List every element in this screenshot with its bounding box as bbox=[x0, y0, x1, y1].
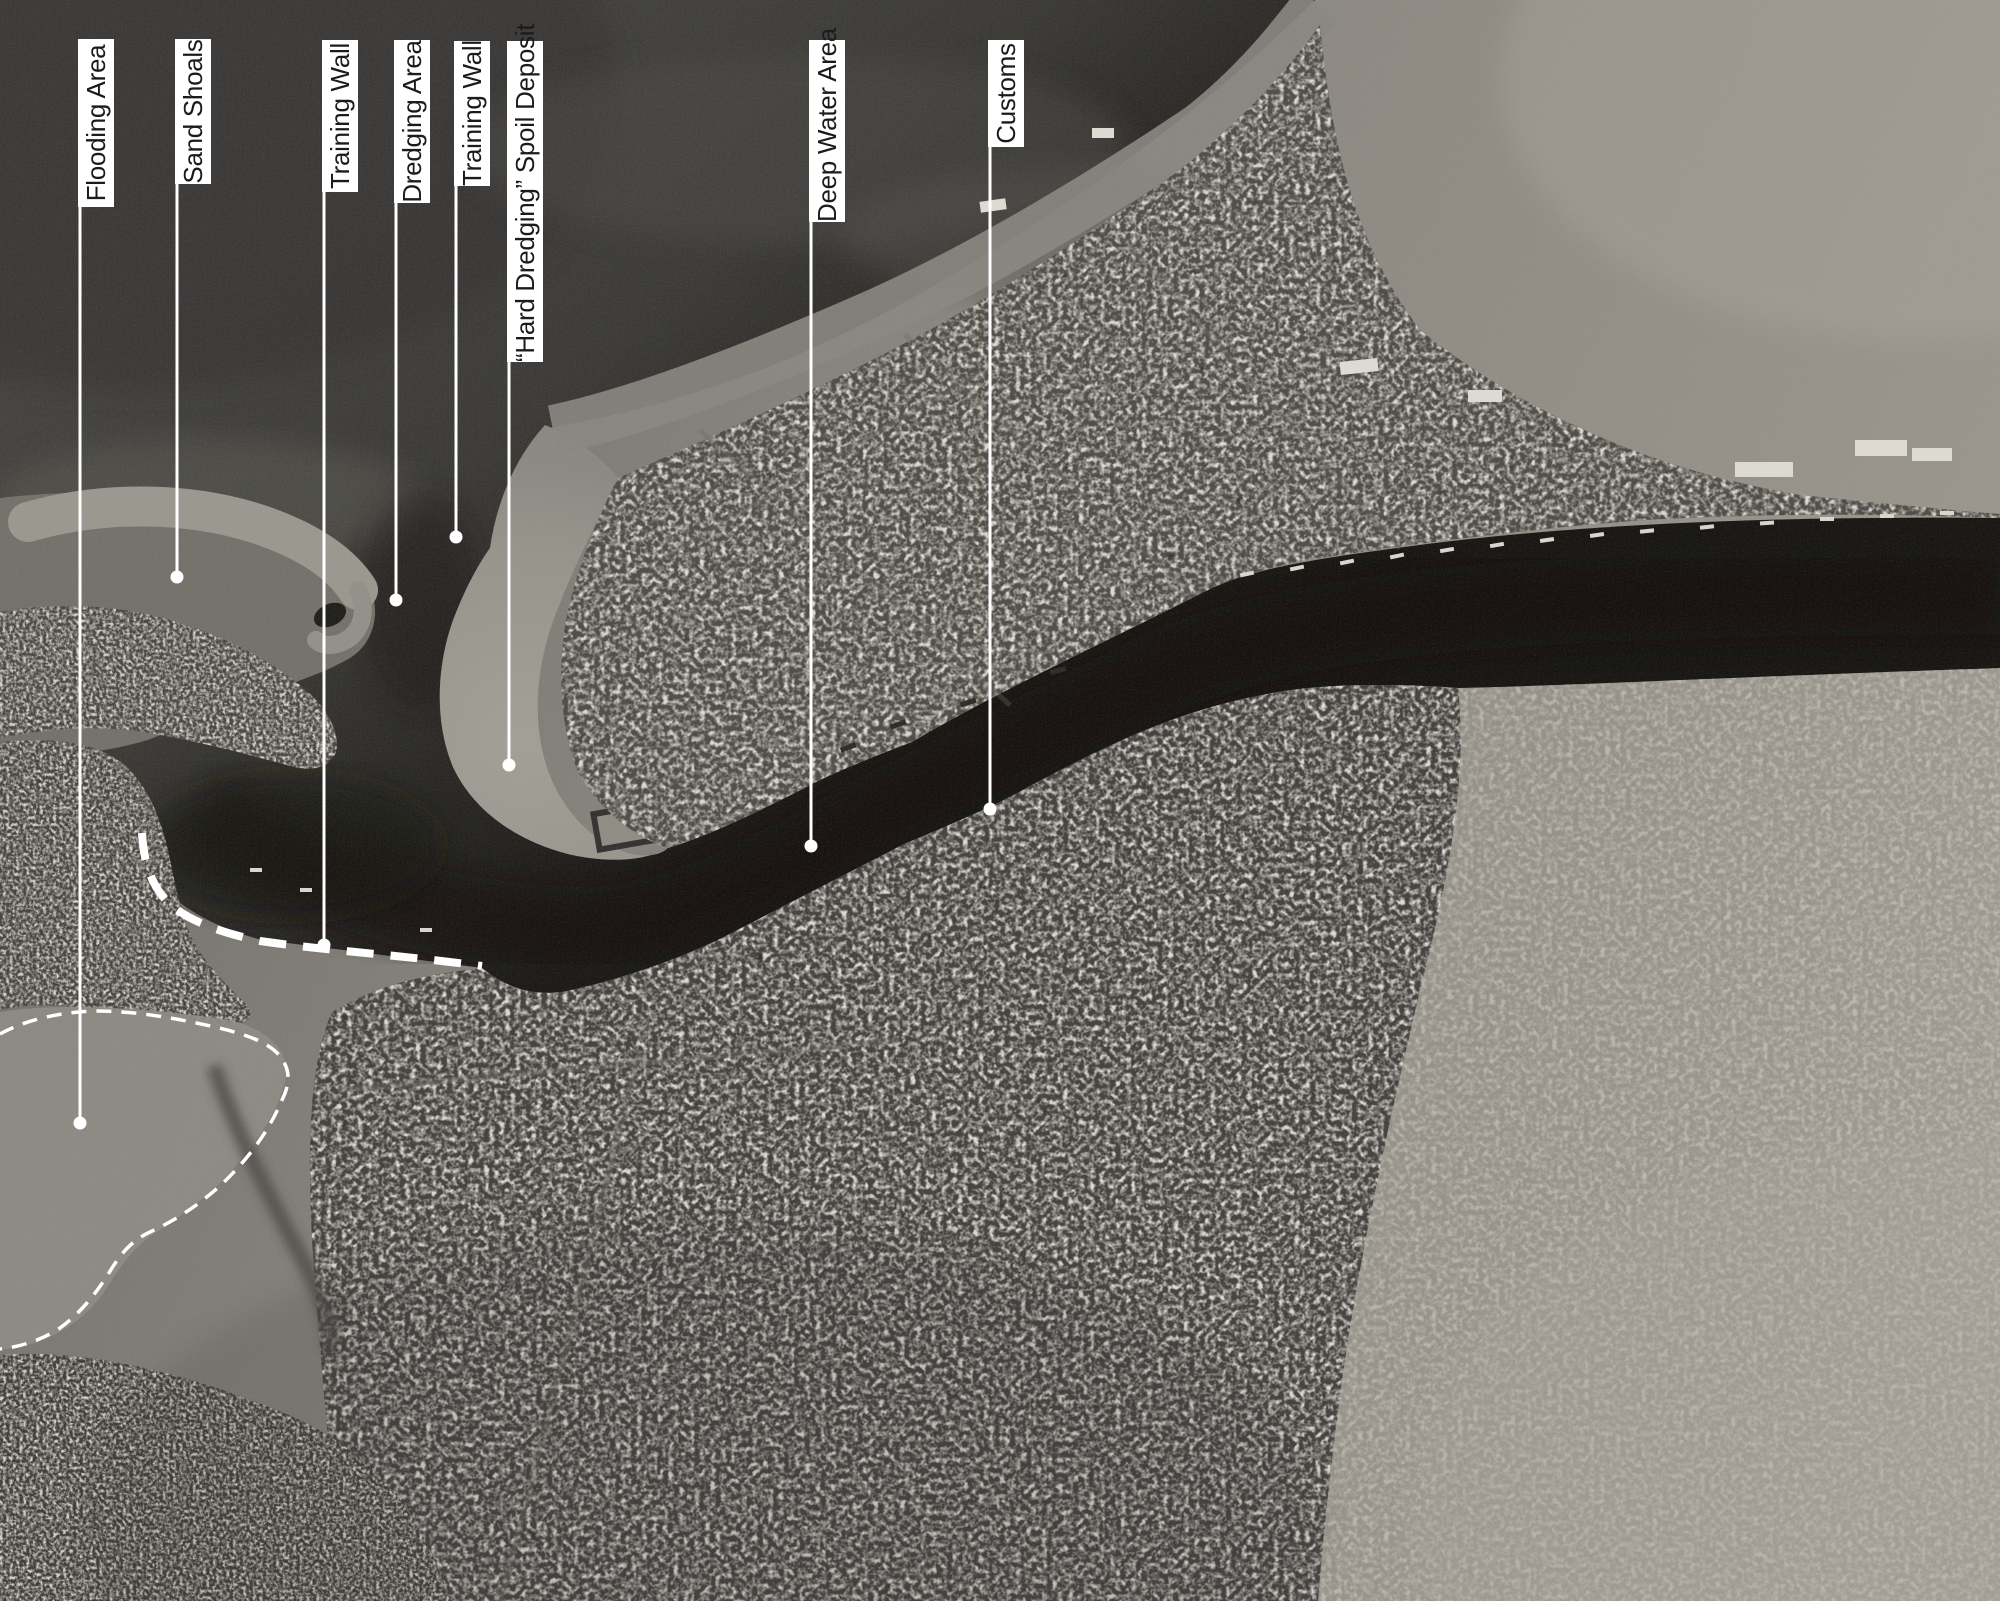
leader-dot-dredging-area bbox=[390, 594, 403, 607]
leader-dot-spoil-deposit bbox=[503, 759, 516, 772]
annotation-label-training-wall-2: Training Wall bbox=[454, 41, 490, 186]
leader-dot-deep-water-area bbox=[805, 840, 818, 853]
leader-dot-sand-shoals bbox=[171, 571, 184, 584]
aerial-photo-svg bbox=[0, 0, 2000, 1601]
leader-dot-customs bbox=[984, 803, 997, 816]
annotation-label-spoil-deposit: “Hard Dredging” Spoil Deposit bbox=[507, 41, 543, 362]
annotation-label-customs: Customs bbox=[988, 40, 1024, 147]
annotated-aerial-photo: Flooding Area Sand Shoals Training Wall … bbox=[0, 0, 2000, 1601]
leader-dot-training-wall-1 bbox=[318, 939, 331, 952]
annotation-label-deep-water-area: Deep Water Area bbox=[809, 40, 845, 222]
leader-dot-flooding-area bbox=[74, 1117, 87, 1130]
annotation-label-flooding-area: Flooding Area bbox=[78, 39, 114, 207]
photo-grain bbox=[0, 0, 2000, 1601]
annotation-label-sand-shoals: Sand Shoals bbox=[175, 39, 211, 184]
terrain bbox=[0, 0, 2000, 1601]
annotation-label-training-wall-1: Training Wall bbox=[322, 40, 358, 192]
leader-dot-training-wall-2 bbox=[450, 531, 463, 544]
annotation-label-dredging-area: Dredging Area bbox=[394, 40, 430, 203]
